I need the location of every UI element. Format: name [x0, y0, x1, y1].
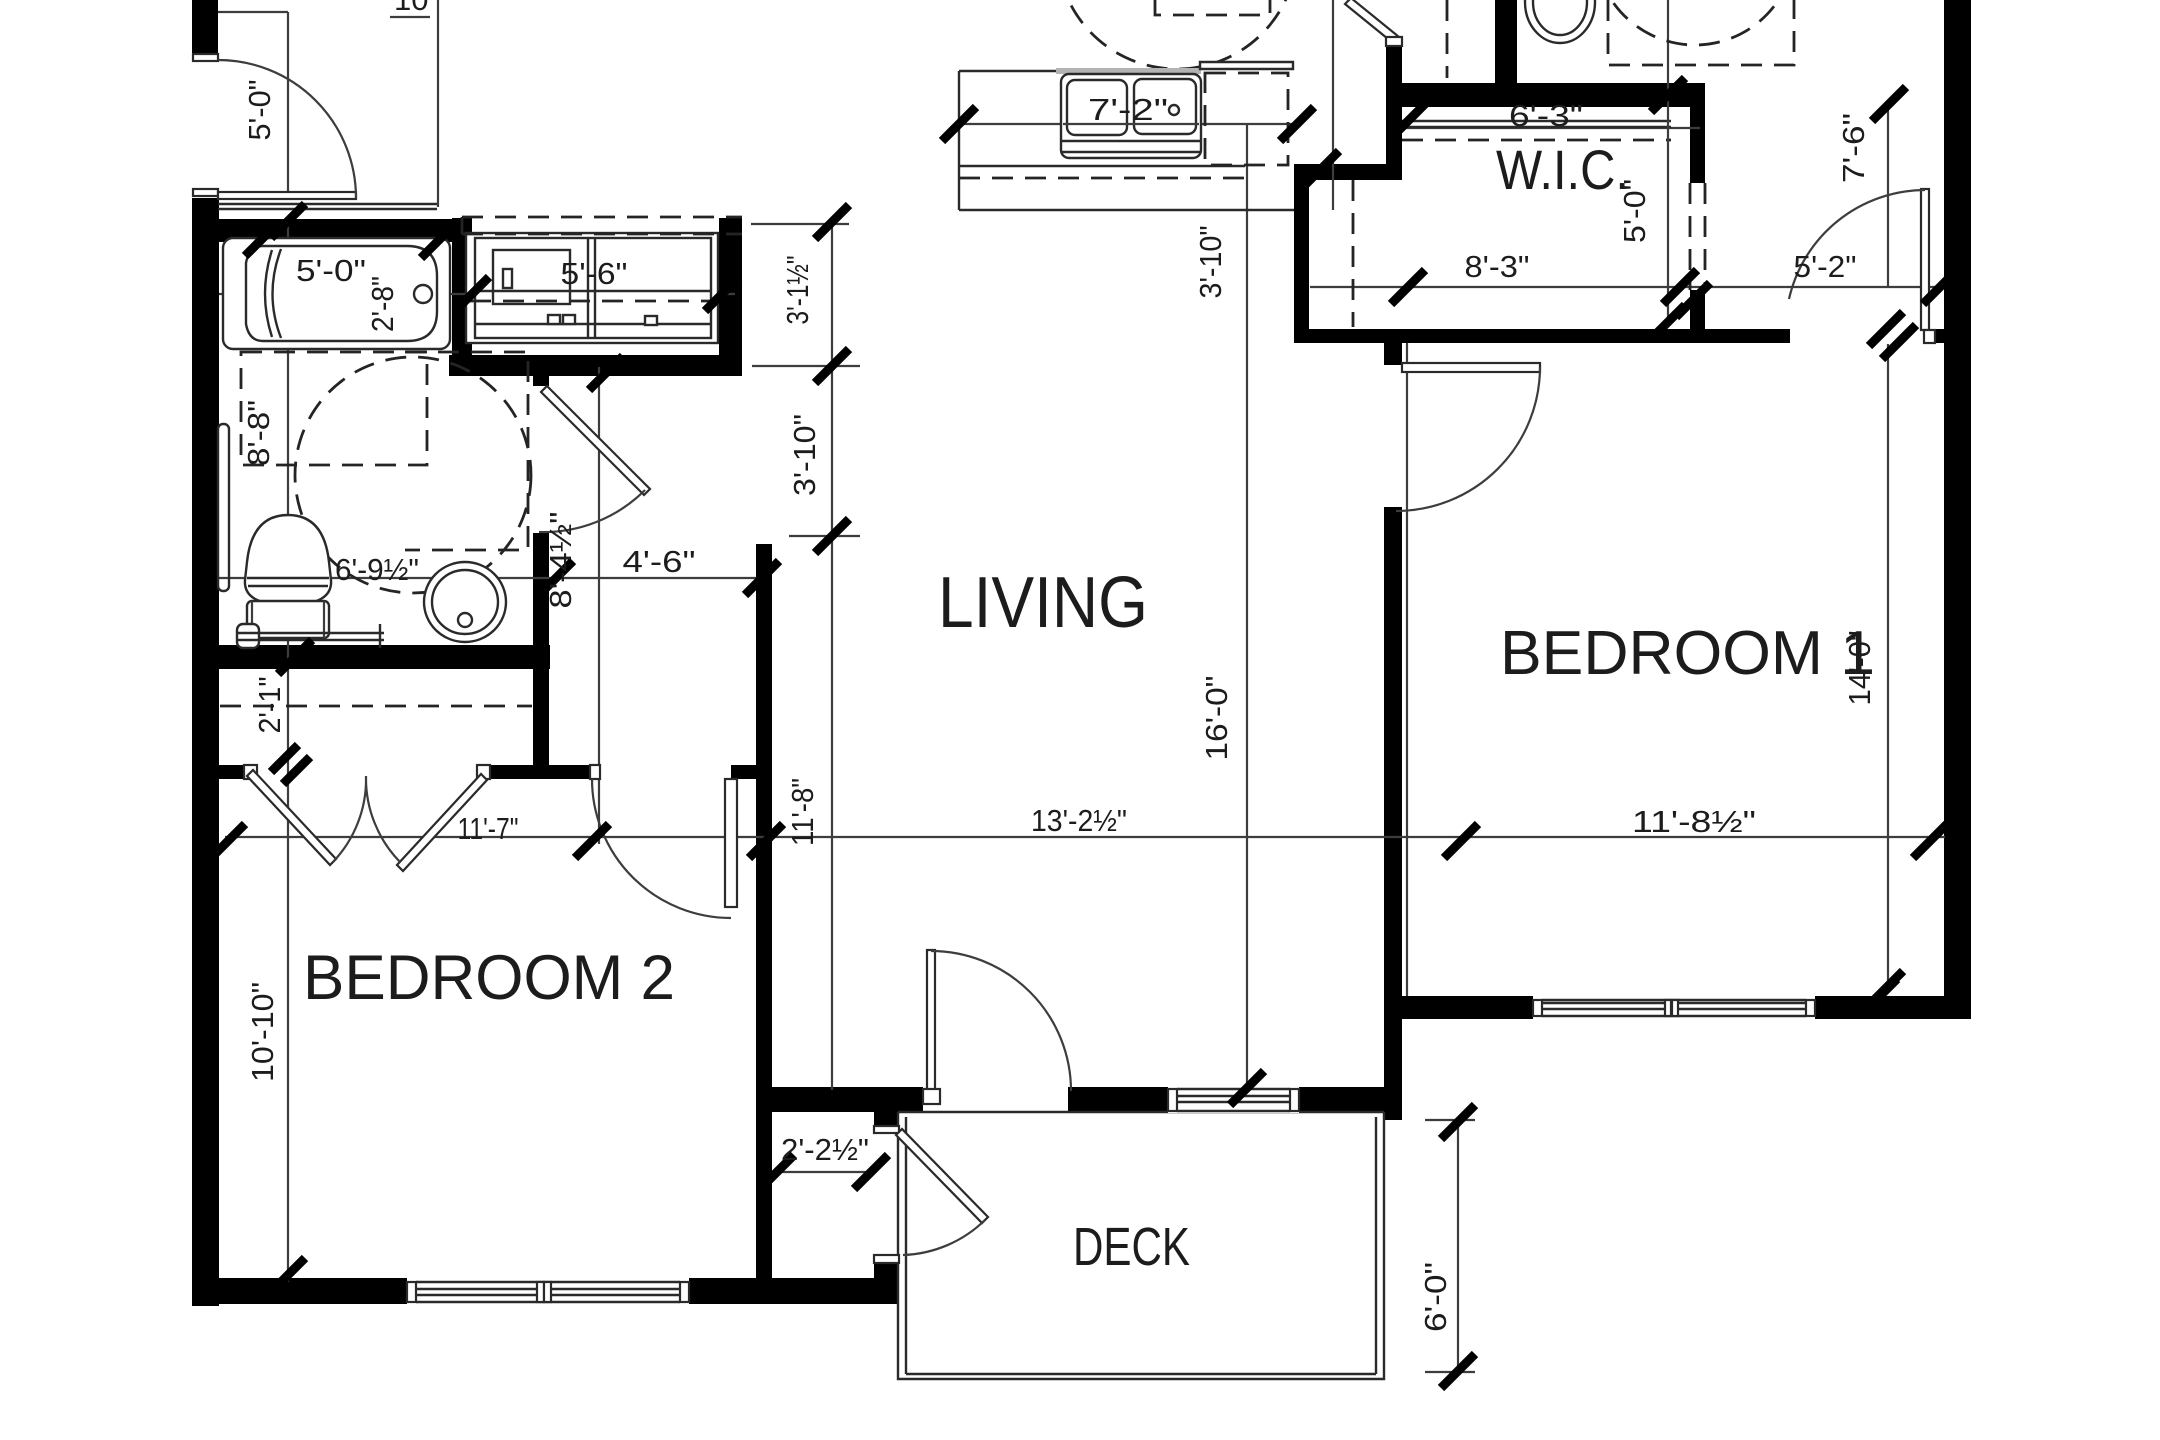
svg-text:13'-2½": 13'-2½"	[1031, 803, 1127, 838]
svg-text:2'-2½": 2'-2½"	[781, 1132, 869, 1167]
svg-text:5'-2": 5'-2"	[1794, 249, 1857, 284]
svg-text:W.I.C.: W.I.C.	[1496, 138, 1629, 201]
svg-text:4'-6": 4'-6"	[623, 544, 696, 579]
svg-text:3'-10": 3'-10"	[787, 414, 822, 496]
svg-text:5'-6": 5'-6"	[561, 256, 628, 291]
svg-text:7'-6": 7'-6"	[1836, 113, 1871, 183]
svg-text:3'-1½": 3'-1½"	[780, 256, 815, 325]
svg-text:DECK: DECK	[1073, 1217, 1190, 1277]
svg-text:6'-9½": 6'-9½"	[335, 552, 419, 587]
svg-text:10': 10'	[394, 0, 434, 17]
svg-text:BEDROOM 1: BEDROOM 1	[1500, 619, 1875, 688]
svg-text:2'-1": 2'-1"	[252, 677, 287, 734]
svg-text:6'-3": 6'-3"	[1509, 98, 1583, 133]
svg-text:2'-8": 2'-8"	[365, 276, 400, 332]
svg-text:16'-0": 16'-0"	[1199, 676, 1234, 761]
svg-text:11'-7": 11'-7"	[458, 811, 519, 846]
svg-text:5'-0": 5'-0"	[296, 253, 366, 288]
svg-text:6'-0": 6'-0"	[1418, 1262, 1453, 1332]
svg-text:8'-3": 8'-3"	[1465, 249, 1530, 284]
svg-text:5'-0": 5'-0"	[242, 80, 277, 141]
svg-text:3'-10": 3'-10"	[1193, 226, 1228, 299]
svg-text:LIVING: LIVING	[938, 563, 1148, 643]
svg-text:BEDROOM 2: BEDROOM 2	[303, 943, 675, 1013]
svg-text:11'-8½": 11'-8½"	[1632, 804, 1756, 839]
svg-text:10'-10": 10'-10"	[245, 982, 280, 1082]
svg-text:8'-8": 8'-8"	[241, 400, 276, 466]
svg-text:8'-4½": 8'-4½"	[543, 512, 578, 609]
svg-text:7'-2": 7'-2"	[1088, 92, 1168, 127]
svg-text:11'-8": 11'-8"	[785, 778, 820, 846]
